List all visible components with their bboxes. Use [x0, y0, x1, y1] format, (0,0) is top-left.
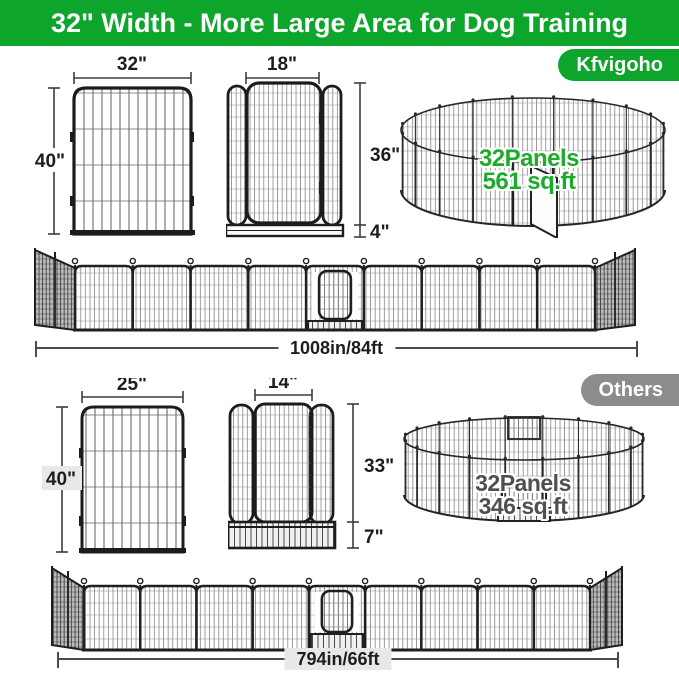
gate-bottom-label: 4" [370, 222, 390, 243]
gate-door [255, 404, 312, 522]
panel-height-label: 40" [35, 151, 65, 172]
pen-back-gate [508, 417, 540, 439]
latch [252, 430, 256, 441]
pen-area: 346 sq.ft [423, 495, 623, 518]
post-ring [304, 258, 309, 263]
pen-panels-count: 32Panels [423, 472, 623, 495]
post-ring [419, 258, 424, 263]
row-door [322, 591, 352, 632]
panel-height-label: 40" [46, 469, 76, 490]
panel-body [82, 407, 183, 552]
gate-width-label: 18" [267, 56, 297, 75]
product-infographic: 32" Width - More Large Area for Dog Trai… [0, 0, 679, 679]
gate-side-left [228, 86, 246, 225]
post-ring [130, 258, 135, 263]
gate-diagram-others: 14" 33" 7" [228, 378, 406, 572]
post-ring [419, 578, 424, 583]
post-ring [363, 578, 368, 583]
post-ring [306, 578, 311, 583]
header-banner: 32" Width - More Large Area for Dog Trai… [0, 0, 679, 46]
others-badge-label: Others [599, 379, 663, 401]
gate-door [247, 83, 321, 223]
row-length-dim-kfvigoho: 1008in/84ft [36, 347, 637, 349]
fence-panel [537, 266, 595, 330]
others-badge: Others [581, 374, 679, 406]
post-ring [531, 578, 536, 583]
post-ring [72, 258, 77, 263]
hinge [182, 516, 186, 526]
panel-width-label: 25" [117, 378, 147, 395]
post-ring [587, 578, 592, 583]
fence-panel [133, 266, 191, 330]
post-ring [361, 258, 366, 263]
post-ring [194, 578, 199, 583]
fence-panel [365, 586, 421, 650]
fence-panel [421, 586, 477, 650]
brand-badge-label: Kfvigoho [576, 54, 663, 76]
dim-tick [617, 652, 619, 668]
latch [309, 490, 313, 501]
dim-tick [636, 341, 638, 357]
post-ring [138, 578, 143, 583]
post-ring [535, 258, 540, 263]
post-ring [592, 258, 597, 263]
gate-base-board [228, 522, 335, 548]
gate-bottom-label: 7" [364, 527, 384, 548]
hinge [79, 448, 83, 458]
panel-diagram-others: 25" 40" [40, 378, 200, 564]
row-door [319, 271, 351, 319]
row-length-dim-others: 794in/66ft [58, 658, 618, 660]
latch [319, 112, 323, 124]
post-ring [246, 258, 251, 263]
row-length-label: 794in/66ft [284, 648, 391, 670]
panel-diagram-kfvigoho: 32" 40" [20, 56, 220, 240]
gate-width-label: 14" [268, 378, 298, 393]
row-length-label: 1008in/84ft [278, 337, 395, 359]
pen-label-kfvigoho: 32Panels 561 sq.ft [429, 147, 629, 193]
fence-panel [534, 586, 590, 650]
brand-badge: Kfvigoho [558, 49, 679, 81]
hinge [79, 516, 83, 526]
pen-area: 561 sq.ft [429, 170, 629, 193]
fence-panel [140, 586, 196, 650]
dim-tick [57, 652, 59, 668]
fence-panel [364, 266, 422, 330]
fence-panel [196, 586, 252, 650]
hinge [190, 132, 194, 142]
fence-row-kfvigoho [20, 248, 660, 340]
latch [319, 182, 323, 194]
post-ring [475, 578, 480, 583]
fence-panel [75, 266, 133, 330]
fence-panel [248, 266, 306, 330]
fence-row-others [20, 566, 660, 658]
dim-tick [35, 341, 37, 357]
gate-side-left [230, 405, 253, 524]
hinge [70, 196, 74, 206]
panel-body [74, 88, 191, 234]
post-ring [81, 578, 86, 583]
post-ring [188, 258, 193, 263]
fence-panel [422, 266, 480, 330]
fence-panel [479, 266, 537, 330]
gate-height-label: 33" [364, 456, 394, 477]
gate-side-right [323, 86, 341, 225]
post-ring [250, 578, 255, 583]
pen-label-others: 32Panels 346 sq.ft [423, 472, 623, 518]
fence-panel [84, 586, 140, 650]
panel-width-label: 32" [117, 56, 147, 75]
hinge [70, 132, 74, 142]
pen-panels-count: 32Panels [429, 147, 629, 170]
gate-diagram-kfvigoho: 18" 36" 4" [226, 56, 404, 244]
fence-panel [253, 586, 309, 650]
hinge [182, 448, 186, 458]
hinge [190, 196, 194, 206]
header-title: 32" Width - More Large Area for Dog Trai… [51, 8, 628, 39]
fence-panel [478, 586, 534, 650]
post-ring [477, 258, 482, 263]
fence-panel [191, 266, 249, 330]
